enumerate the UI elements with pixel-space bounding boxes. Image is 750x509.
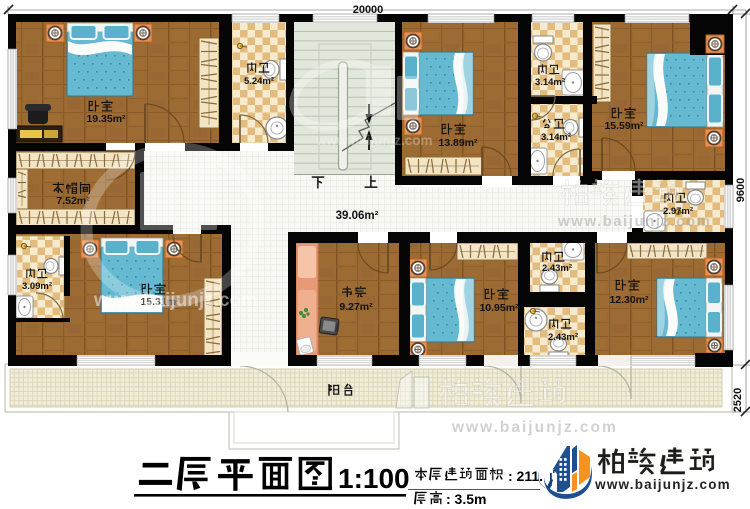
svg-text:1:100: 1:100 bbox=[338, 463, 410, 494]
svg-text:2.43m²: 2.43m² bbox=[542, 263, 572, 274]
svg-text:10.95m²: 10.95m² bbox=[479, 302, 519, 314]
svg-text:3.09m²: 3.09m² bbox=[22, 281, 52, 292]
svg-text:www.baijunjz.com: www.baijunjz.com bbox=[451, 419, 618, 436]
svg-text:3.14m²: 3.14m² bbox=[535, 77, 565, 88]
svg-text:www.baijunjz.com: www.baijunjz.com bbox=[315, 133, 433, 148]
svg-text:3.14m²: 3.14m² bbox=[541, 132, 571, 143]
svg-text:19.35m²: 19.35m² bbox=[86, 113, 126, 125]
svg-text:39.06m²: 39.06m² bbox=[336, 210, 379, 222]
svg-text:9600: 9600 bbox=[735, 178, 747, 202]
svg-text:2520: 2520 bbox=[732, 388, 744, 412]
svg-text:9.27m²: 9.27m² bbox=[339, 301, 373, 313]
svg-text:www.baijunjz.com: www.baijunjz.com bbox=[93, 290, 258, 311]
svg-text:www.baijunjz.com: www.baijunjz.com bbox=[594, 477, 731, 492]
svg-text:15.59m²: 15.59m² bbox=[604, 120, 644, 132]
svg-text:5.24m²: 5.24m² bbox=[244, 76, 274, 87]
svg-text:2.43m²: 2.43m² bbox=[548, 332, 578, 343]
svg-text:20000: 20000 bbox=[353, 4, 384, 16]
svg-text:: 3.5m: : 3.5m bbox=[446, 491, 486, 507]
svg-text:13.89m²: 13.89m² bbox=[438, 137, 478, 149]
svg-text:www.baijunjz.com: www.baijunjz.com bbox=[557, 213, 711, 230]
svg-text:12.30m²: 12.30m² bbox=[609, 294, 649, 306]
